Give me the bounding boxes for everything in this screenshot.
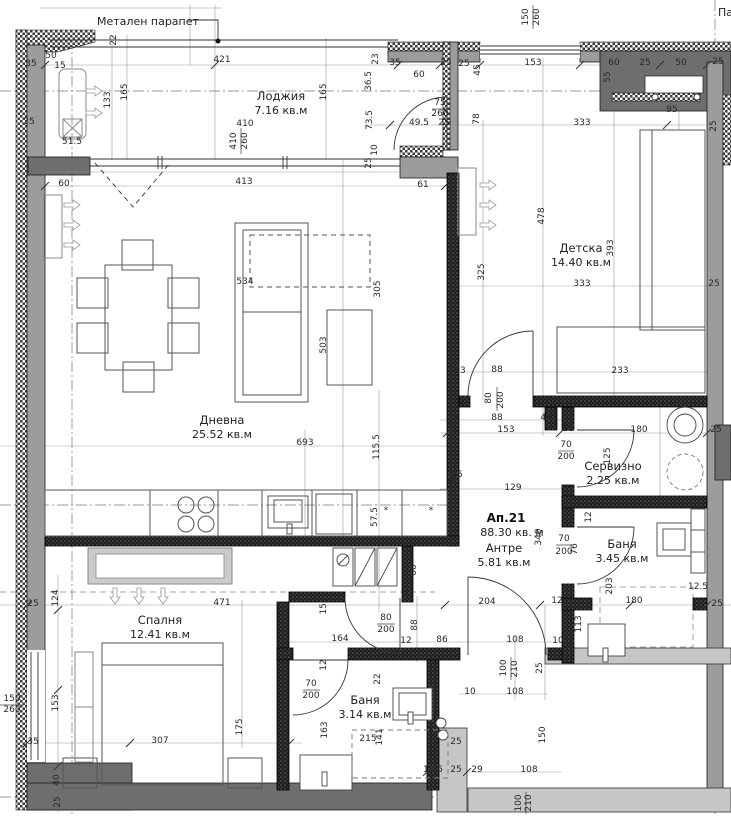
stove-burner (198, 516, 214, 532)
dimension-label: 12 (319, 659, 329, 670)
floor-plan-canvas: Метален парапет Па Ап.21 88.30 кв. м Лод… (0, 0, 731, 816)
dimension-label: 25 (364, 157, 374, 168)
room-area-label: 3.14 кв.м (339, 708, 392, 721)
dimension-label: 410 (236, 119, 253, 129)
room-label: Спалня (138, 613, 182, 627)
dimension-label: 25 (27, 599, 38, 609)
dimension-label: 25 (438, 118, 449, 128)
dimension-label: 164 (331, 634, 348, 644)
dimension-label: 25 (451, 470, 462, 480)
dimension-label: 40 (52, 774, 62, 786)
dimension-label: 141 (375, 728, 385, 745)
dimension-label: 260 (532, 8, 542, 25)
dimension-label: 75 (434, 98, 445, 108)
dimension-label: 165 (120, 83, 130, 100)
dimension-label: 36.5 (364, 71, 374, 91)
dimension-label: 24 (447, 413, 459, 423)
dimension-label: 73.5 (365, 110, 375, 130)
dimension-label: 88 (410, 619, 420, 631)
dimension-label: 413 (235, 177, 252, 187)
dimension-label: 113 (574, 615, 584, 632)
dimension-label: 150 (538, 726, 548, 743)
dimension-label: 88 (491, 413, 503, 423)
dimension-label: 325 (477, 263, 487, 280)
dimension-label: 180 (630, 425, 647, 435)
room-area-label: 3.45 кв.м (596, 552, 649, 565)
room-area-label: 2.25 кв.м (587, 474, 640, 487)
dimension-label: 25 (712, 57, 723, 67)
dimension-label: 100 (499, 659, 509, 676)
room-label: Сервизно (584, 459, 641, 473)
room-label: Дневна (200, 413, 245, 427)
dimension-label: 50 (45, 51, 57, 61)
dimension-label: 200 (496, 391, 506, 408)
dimension-label: 80 (484, 392, 494, 404)
dimension-label: 163 (320, 721, 330, 738)
dimension-label: 124 (51, 589, 61, 606)
dimension-label: 307 (151, 736, 168, 746)
dimension-label: 133 (103, 91, 113, 108)
room-label: Баня (350, 693, 379, 707)
dimension-label: 10 (370, 144, 380, 156)
dimension-label: 25 (535, 662, 545, 673)
dimension-label: 70 (558, 534, 570, 544)
dimension-label: 210 (510, 660, 520, 677)
room-label: Баня (607, 537, 636, 551)
dimension-label: 12 (551, 596, 562, 606)
dimension-label: 80 (380, 613, 392, 623)
dimension-label: 60 (58, 179, 70, 189)
dimension-label: 534 (236, 277, 253, 287)
dimension-label: 25 (450, 765, 461, 775)
dimension-label: 35 (25, 59, 36, 69)
dimension-label: 23 (371, 53, 381, 64)
dimension-label: 25 (53, 796, 63, 807)
dimension-label: 108 (506, 635, 523, 645)
dimension-label: 153 (497, 425, 514, 435)
room-label: Лоджия (257, 89, 305, 103)
dimension-label: 60 (409, 564, 419, 576)
dimension-label: 12 (562, 424, 573, 434)
dimension-label: 25 (639, 58, 650, 68)
dimension-label: 125 (603, 447, 613, 464)
dimension-label: 60 (413, 70, 425, 80)
dimension-label: 25 (711, 599, 722, 609)
dimension-label: 12 (584, 511, 594, 522)
dimension-label: 333 (573, 118, 590, 128)
dimension-label: 25 (450, 737, 461, 747)
room-area-label: 5.81 кв.м (478, 556, 531, 569)
dimension-label: 76 (570, 543, 580, 555)
dimension-label: 35 (27, 737, 38, 747)
dimension-label: 78 (472, 113, 482, 125)
radiator (44, 195, 62, 258)
dimension-label: 51.5 (62, 137, 82, 147)
dimension-label: 41 (540, 413, 551, 423)
dimension-label: 10 (552, 636, 564, 646)
dimension-label: 129 (504, 483, 521, 493)
dimension-label: 70 (305, 679, 317, 689)
dimension-label: 305 (373, 280, 383, 297)
dimension-label: 333 (573, 279, 590, 289)
dimension-label: 100 (514, 794, 524, 811)
dimension-label: 200 (557, 452, 574, 462)
dimension-label: 471 (213, 598, 230, 608)
radiator (458, 168, 476, 235)
dimension-label: 95 (666, 105, 677, 115)
dimension-label: 45 (473, 64, 483, 75)
stove-burner (178, 516, 194, 532)
dimension-label: 10 (464, 687, 476, 697)
fixtures (300, 407, 705, 790)
shower-column (691, 509, 705, 573)
dimension-label: 55 (603, 71, 613, 82)
dimension-label: 12 (400, 636, 411, 646)
child-bed (640, 130, 705, 330)
dimension-label: 200 (302, 691, 319, 701)
dimension-label: 153 (51, 694, 61, 711)
dimension-label: 150 (3, 694, 20, 704)
dimension-label: 49.5 (409, 118, 429, 128)
dimension-label: 233 (611, 366, 628, 376)
room-label: Детска (559, 241, 602, 255)
dimension-label: 13 (454, 366, 465, 376)
dimension-label: 393 (606, 239, 616, 256)
dimension-labels: 224213550151651332551.541041026016560413… (3, 8, 723, 811)
coffee-table (327, 310, 372, 385)
dimension-label: 25 (23, 117, 34, 127)
dimension-label: 410 (229, 132, 239, 149)
dimension-label: 260 (240, 132, 250, 149)
dimension-label: 50 (675, 58, 687, 68)
room-area-label: 14.40 кв.м (551, 256, 611, 269)
desk (557, 327, 705, 393)
dimension-label: 25 (440, 58, 451, 68)
dimension-label: 108 (506, 687, 523, 697)
room-label: Антре (486, 541, 522, 555)
dimension-label: 108 (520, 765, 537, 775)
dimension-label: 200 (377, 625, 394, 635)
parapet-label: Метален парапет (97, 15, 200, 28)
dimension-label: 421 (213, 55, 230, 65)
floor-plan: Метален парапет Па Ап.21 88.30 кв. м Лод… (0, 0, 731, 816)
dimension-label: 70 (560, 440, 572, 450)
dimension-label: 25 (708, 279, 719, 289)
dimension-label: 57.5 (370, 507, 380, 527)
dimension-label: * (429, 506, 434, 516)
dimension-label: 12.5 (423, 765, 443, 775)
dimension-label: 203 (605, 577, 615, 594)
dimension-label: 22 (373, 673, 383, 684)
dimension-label: 86 (436, 635, 448, 645)
dimension-label: 153 (524, 58, 541, 68)
dimension-label: 175 (235, 718, 245, 735)
dimension-label: 15 (54, 61, 65, 71)
dimension-label: 115.5 (372, 434, 382, 460)
dimension-label: 260 (3, 705, 20, 715)
dimension-label: 693 (296, 438, 313, 448)
apartment-name: Ап.21 (487, 511, 526, 525)
dimension-label: 204 (478, 597, 495, 607)
dimension-label: * (384, 506, 389, 516)
dimension-label: 61 (417, 180, 428, 190)
dimension-label: 22 (109, 34, 119, 45)
edge-label: Па (718, 6, 731, 19)
dimension-label: 478 (537, 207, 547, 224)
dimension-label: 12.5 (688, 582, 708, 592)
dimension-label: 25 (458, 59, 469, 69)
dining-table (105, 265, 172, 370)
dimension-label: 150 (521, 8, 531, 25)
boiler (667, 454, 703, 490)
dimension-label: 29 (471, 765, 483, 775)
dimension-label: 88 (491, 365, 503, 375)
room-area-label: 25.52 кв.м (192, 428, 252, 441)
room-area-label: 12.41 кв.м (130, 628, 190, 641)
dimension-label: 60 (608, 58, 620, 68)
dimension-label: 35 (389, 58, 400, 68)
dimension-label: 210 (524, 794, 534, 811)
dimension-label: 503 (319, 336, 329, 353)
room-area-label: 7.16 кв.м (255, 104, 308, 117)
dimension-label: 25 (710, 425, 721, 435)
dimension-label: 180 (625, 596, 642, 606)
dimension-label: 152 (319, 597, 329, 614)
dimension-label: 340 (534, 528, 544, 545)
dimension-label: 25 (709, 120, 719, 131)
dimension-label: 165 (319, 83, 329, 100)
